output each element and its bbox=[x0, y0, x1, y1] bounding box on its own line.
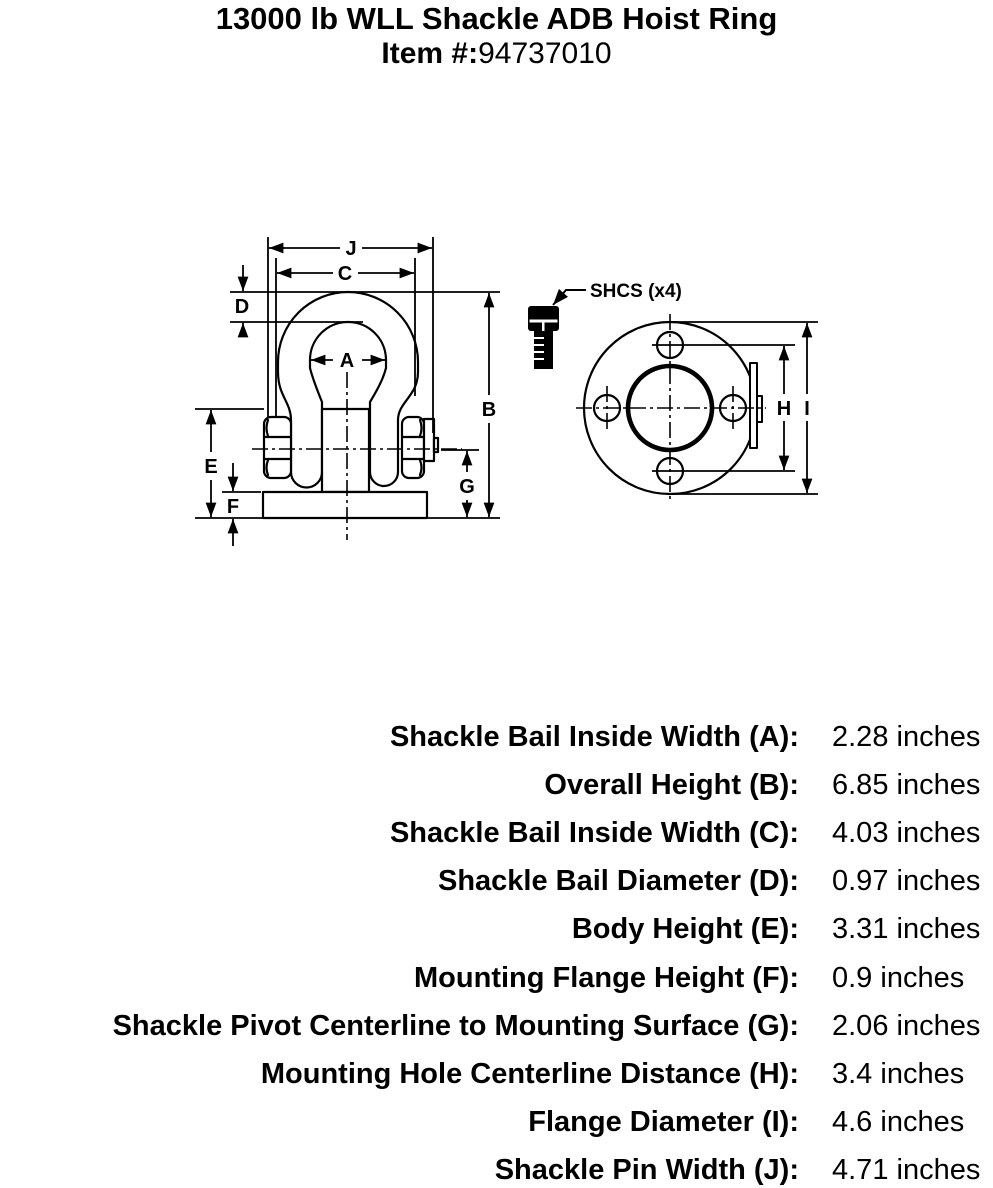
dimensions-top-view: H I bbox=[652, 322, 818, 494]
shcs-screw: SHCS (x4) bbox=[528, 281, 682, 369]
dimension-B: B bbox=[482, 293, 496, 517]
spec-label: Mounting Flange Height (F): bbox=[0, 962, 799, 995]
spec-value: 2.06 inches bbox=[832, 1010, 980, 1043]
spec-sheet-page: 13000 lb WLL Shackle ADB Hoist Ring Item… bbox=[0, 0, 993, 1188]
tab-strip bbox=[750, 363, 757, 448]
spec-label: Mounting Hole Centerline Distance (H): bbox=[0, 1058, 799, 1091]
dimension-H: H bbox=[777, 346, 791, 470]
spec-row: Flange Diameter (I): 4.6 inches bbox=[0, 1099, 993, 1147]
dimension-J: J bbox=[269, 238, 432, 260]
spec-label: Shackle Bail Diameter (D): bbox=[0, 865, 799, 898]
dimension-E: E bbox=[204, 410, 217, 517]
dim-label-E: E bbox=[204, 456, 217, 478]
spec-value: 3.4 inches bbox=[832, 1058, 964, 1091]
spec-row: Mounting Hole Centerline Distance (H): 3… bbox=[0, 1050, 993, 1098]
spec-row: Shackle Bail Inside Width (C): 4.03 inch… bbox=[0, 809, 993, 857]
callout-label: SHCS (x4) bbox=[590, 281, 682, 302]
callout-leader-line bbox=[553, 290, 586, 305]
body-rect bbox=[322, 409, 369, 492]
spec-value: 2.28 inches bbox=[832, 721, 980, 754]
clip-hook bbox=[434, 438, 438, 452]
dimension-I: I bbox=[804, 323, 810, 493]
topview-extension-lines bbox=[652, 322, 818, 494]
dim-label-H: H bbox=[777, 398, 791, 420]
spec-row: Body Height (E): 3.31 inches bbox=[0, 906, 993, 954]
spec-label: Overall Height (B): bbox=[0, 769, 799, 802]
top-view bbox=[576, 314, 766, 500]
screw-head-slot bbox=[530, 320, 558, 323]
spec-label: Shackle Bail Inside Width (C): bbox=[0, 817, 799, 850]
dimension-C: C bbox=[277, 263, 414, 285]
spec-label: Shackle Bail Inside Width (A): bbox=[0, 721, 799, 754]
spec-table: Shackle Bail Inside Width (A): 2.28 inch… bbox=[0, 713, 993, 1188]
dim-label-I: I bbox=[804, 398, 810, 420]
spec-label: Shackle Pin Width (J): bbox=[0, 1154, 799, 1187]
technical-drawing: J C D A B bbox=[0, 0, 993, 620]
spec-row: Overall Height (B): 6.85 inches bbox=[0, 761, 993, 809]
screw-socket-notch bbox=[542, 323, 545, 332]
dim-label-A: A bbox=[340, 350, 354, 372]
dimension-A: A bbox=[311, 350, 385, 372]
retaining-clip bbox=[424, 419, 438, 461]
spec-row: Shackle Pivot Centerline to Mounting Sur… bbox=[0, 1002, 993, 1050]
thread-line bbox=[534, 358, 544, 360]
dim-label-D: D bbox=[235, 296, 249, 318]
spec-value: 0.97 inches bbox=[832, 865, 980, 898]
spec-label: Flange Diameter (I): bbox=[0, 1106, 799, 1139]
spec-value: 4.6 inches bbox=[832, 1106, 964, 1139]
spec-label: Shackle Pivot Centerline to Mounting Sur… bbox=[0, 1010, 799, 1043]
dim-label-C: C bbox=[338, 263, 352, 285]
spec-value: 3.31 inches bbox=[832, 913, 980, 946]
spec-value: 4.71 inches bbox=[832, 1154, 980, 1187]
spec-row: Shackle Bail Inside Width (A): 2.28 inch… bbox=[0, 713, 993, 761]
spec-row: Shackle Pin Width (J): 4.71 inches bbox=[0, 1147, 993, 1188]
dim-label-J: J bbox=[345, 238, 356, 260]
spec-value: 6.85 inches bbox=[832, 769, 980, 802]
dimension-F: F bbox=[227, 463, 239, 546]
tab-bump bbox=[757, 396, 762, 422]
mounting-flange-rect bbox=[263, 492, 427, 518]
thread-line bbox=[534, 337, 544, 339]
dimension-D: D bbox=[235, 265, 249, 336]
screw-shank bbox=[534, 331, 553, 369]
spec-value: 0.9 inches bbox=[832, 962, 964, 995]
left-nut-outline bbox=[264, 417, 291, 478]
thread-line bbox=[534, 351, 544, 353]
spec-row: Shackle Bail Diameter (D): 0.97 inches bbox=[0, 858, 993, 906]
spec-label: Body Height (E): bbox=[0, 913, 799, 946]
right-hex-nut bbox=[402, 417, 424, 478]
dim-label-F: F bbox=[227, 496, 239, 518]
dim-label-G: G bbox=[459, 476, 475, 498]
left-hex-nut bbox=[264, 417, 291, 478]
side-view bbox=[252, 292, 462, 540]
dim-label-B: B bbox=[482, 399, 496, 421]
spec-value: 4.03 inches bbox=[832, 817, 980, 850]
spec-row: Mounting Flange Height (F): 0.9 inches bbox=[0, 954, 993, 1002]
thread-line bbox=[534, 344, 544, 346]
dimension-G: G bbox=[459, 451, 475, 517]
